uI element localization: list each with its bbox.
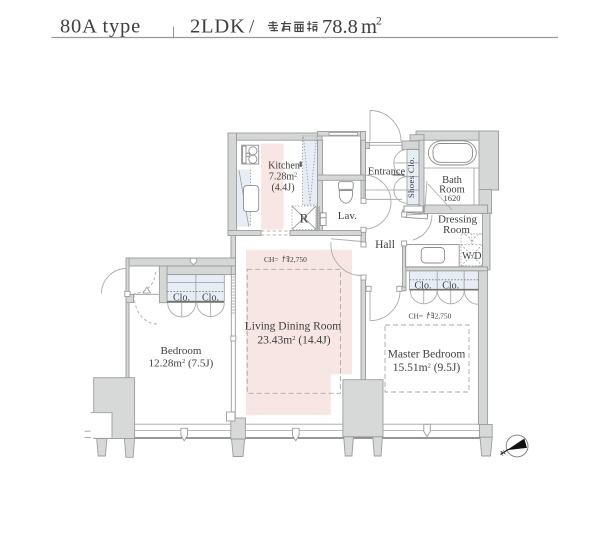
svg-text:Entrance: Entrance	[368, 167, 406, 178]
svg-text:Living Dining Room: Living Dining Room	[245, 321, 342, 333]
svg-text:(4.4J): (4.4J)	[271, 183, 294, 194]
svg-text:12.28m2 (7.5J): 12.28m2 (7.5J)	[149, 358, 214, 370]
svg-text:Clo.: Clo.	[442, 281, 459, 292]
svg-text:CH=: CH=	[409, 312, 424, 321]
svg-text:78.8: 78.8	[322, 16, 358, 38]
svg-text:Shoes Clo.: Shoes Clo.	[406, 157, 416, 198]
svg-text:R: R	[300, 211, 309, 226]
svg-text:Master Bedroom: Master Bedroom	[388, 349, 466, 361]
svg-text:CH=: CH=	[264, 255, 279, 264]
svg-text:Bedroom: Bedroom	[161, 345, 202, 357]
svg-text:Hall: Hall	[375, 239, 395, 251]
svg-text:Clo.: Clo.	[173, 293, 190, 304]
svg-text:2,750: 2,750	[290, 255, 307, 264]
svg-text:Room: Room	[443, 224, 470, 236]
svg-text:2LDK: 2LDK	[190, 16, 246, 38]
svg-text:80A type: 80A type	[60, 16, 141, 38]
svg-text:/: /	[249, 17, 255, 38]
svg-text:7.28m2: 7.28m2	[269, 172, 297, 183]
svg-text:1620: 1620	[444, 193, 461, 203]
svg-text:Clo.: Clo.	[202, 293, 219, 304]
svg-text:W/D: W/D	[462, 251, 481, 262]
svg-text:2: 2	[376, 16, 382, 28]
svg-text:2,750: 2,750	[435, 312, 452, 321]
svg-text:Kitchen: Kitchen	[268, 161, 300, 172]
svg-text:Clo.: Clo.	[415, 281, 432, 292]
svg-text:Lav.: Lav.	[338, 210, 357, 222]
svg-text:15.51m2 (9.5J): 15.51m2 (9.5J)	[393, 362, 461, 374]
svg-text:m: m	[361, 16, 377, 38]
